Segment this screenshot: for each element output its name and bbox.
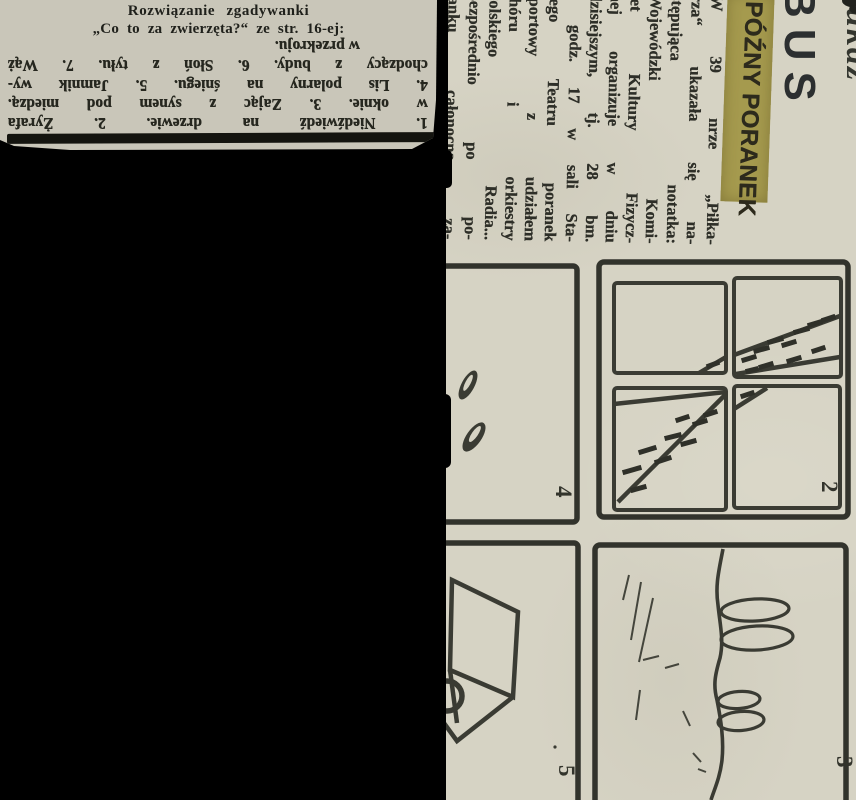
panel-number-2: 2 — [817, 481, 842, 493]
clipping-title-line1: Rozwiązanie zgadywanki — [0, 3, 437, 20]
panel-2-window-drawing — [614, 278, 841, 510]
panel-4-fox-eyes-drawing — [455, 368, 490, 455]
upside-down-answer-line: chodzący z budy. 6. Słoń z tyłu. 7. Wąż — [8, 55, 428, 74]
panel-number-5: 5 — [554, 765, 579, 777]
scan-edge-mark — [443, 0, 448, 158]
upside-down-answer-line: w przekroju. — [8, 36, 428, 55]
scan-edge-mark — [443, 466, 446, 800]
newspaper-strip: BUS ukaz PÓŹNY PORANEK W 39 nrze „Piłka-… — [443, 0, 856, 800]
upside-down-answer-block: w przekroju. chodzący z budy. 6. Słoń z … — [8, 36, 428, 132]
panel-5-border — [443, 543, 578, 800]
scanned-newspaper-page: Rozwiązanie zgadywanki „Co to za zwierzę… — [0, 0, 856, 800]
panel-number-4: 4 — [551, 486, 576, 498]
scan-edge-mark — [443, 186, 446, 398]
panel-number-3: 3 — [832, 756, 856, 768]
upside-down-answer-line: 4. Lis polarny na śniegu. 5. Jamnik wy- — [8, 75, 428, 94]
solution-clipping: Rozwiązanie zgadywanki „Co to za zwierzę… — [0, 0, 437, 151]
panel-3-hare-ears-drawing — [623, 549, 794, 800]
upside-down-answer-line: 1. Niedźwiedź na drzewie. 2. Żyrafa — [8, 113, 428, 132]
solution-divider-bar — [7, 132, 436, 144]
panel-5-doghouse-drawing — [443, 580, 557, 749]
upside-down-answer-line: w oknie. 3. Zając z synem pod miedzą. — [8, 94, 428, 113]
scan-edge-mark — [443, 150, 452, 188]
puzzle-panels-drawing: 4 2 5 3 — [443, 0, 856, 800]
scan-edge-mark — [443, 394, 451, 468]
